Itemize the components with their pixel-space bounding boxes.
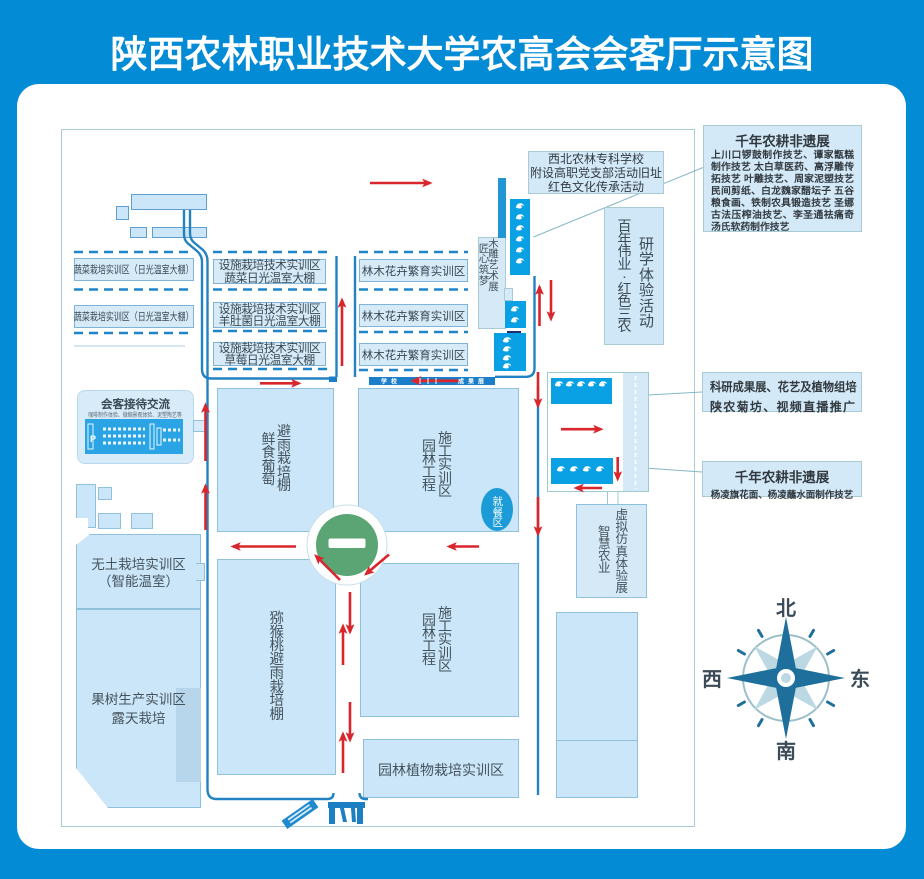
svg-text:P: P (90, 434, 96, 444)
